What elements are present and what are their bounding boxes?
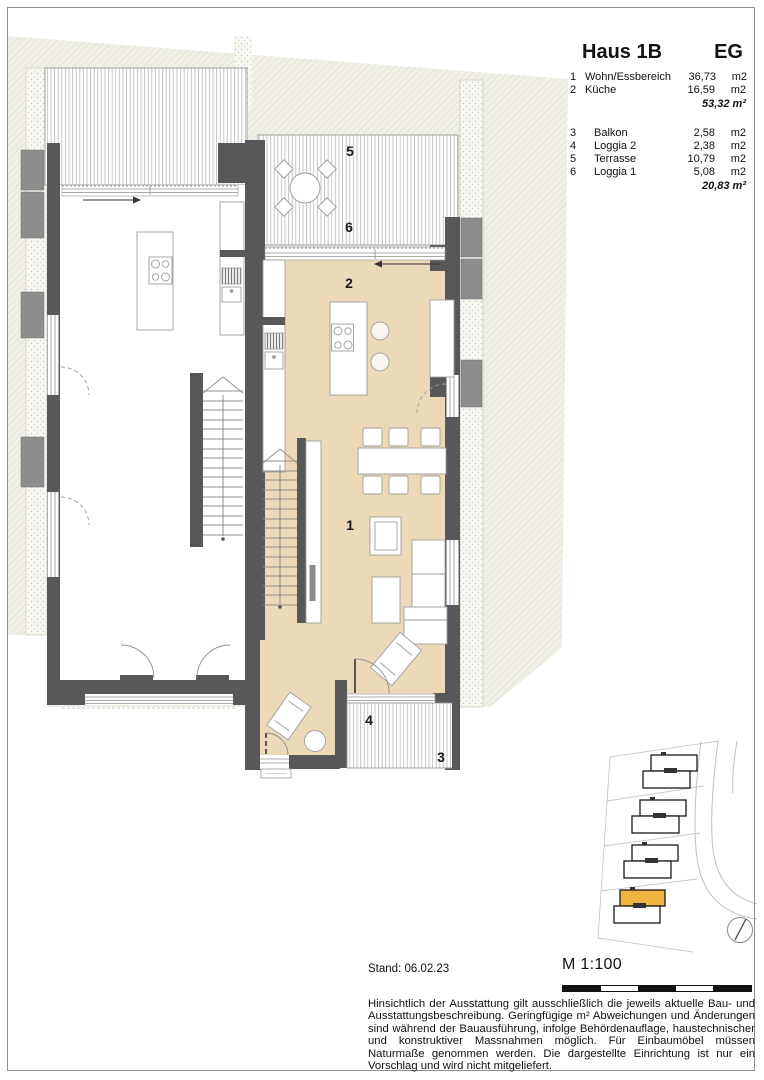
room-area: 10,79 [670,153,715,166]
house-title: Haus 1B [582,40,662,64]
scale-bar-segment [638,986,676,991]
bar-stool [371,322,389,340]
legend-row-terrasse: 5 Terrasse 10,79 m2 [560,153,746,166]
scale-bar-segment [676,986,714,991]
scale-bar-segment [563,986,601,991]
room-number: 3 [570,127,585,140]
room-label-loggia1: 6 [345,219,353,235]
room-label-terrasse: 5 [346,143,354,159]
scale-label: M 1:100 [562,956,622,974]
room-unit: m2 [715,84,746,97]
room-area: 5,08 [670,166,715,179]
room-name: Wohn/Essbereich [585,71,671,84]
window-band-top-haus1b [265,247,445,260]
room-name: Loggia 1 [585,166,670,179]
terrace-left-unit [45,68,247,185]
legend-row-balkon: 3 Balkon 2,58 m2 [560,127,746,140]
room-number: 5 [570,153,585,166]
room-area: 2,58 [670,127,715,140]
room-number: 2 [570,84,585,97]
room-number: 1 [570,71,585,84]
road [695,741,757,919]
ottoman [372,577,400,623]
room-unit: m2 [715,153,746,166]
north-compass-icon [728,918,753,943]
interior-total: 53,32 m² [560,98,746,111]
exterior-total: 20,83 m² [560,180,746,193]
side-table [305,731,326,752]
room-name: Terrasse [585,153,670,166]
room-area: 2,38 [670,140,715,153]
terrace-haus1b [258,135,458,245]
legend-title-row: Haus 1B EG [560,40,746,64]
round-table [290,173,320,203]
dining-table [358,448,446,474]
scale-bar-segment [713,986,751,991]
plan-date: Stand: 06.02.23 [368,963,449,975]
room-number: 4 [570,140,585,153]
door-leaf [196,675,229,681]
room-label-loggia2: 4 [365,712,373,728]
floor-title: EG [714,40,743,64]
room-name: Balkon [585,127,670,140]
left-unit [47,143,258,708]
sofa-chaise [404,607,447,644]
room-name: Loggia 2 [585,140,670,153]
legend-row-loggia2: 4 Loggia 2 2,38 m2 [560,140,746,153]
oven [265,333,283,349]
entry-stoop [261,769,291,778]
tall-cabinet [430,300,454,377]
room-unit: m2 [715,140,746,153]
oven [222,268,241,284]
legend: Haus 1B EG 1 Wohn/Essbereich 36,73 m2 2 … [560,40,746,193]
room-name: Küche [585,84,670,97]
legend-row-kueche: 2 Küche 16,59 m2 [560,84,746,97]
room-unit: m2 [715,166,746,179]
haus-1b-unit [250,217,460,778]
room-unit: m2 [716,71,747,84]
room-area: 16,59 [670,84,715,97]
dining-set [358,428,446,494]
room-label-wohnen: 1 [346,517,354,533]
room-unit: m2 [715,127,746,140]
window-band-top-left-unit [62,185,238,196]
sink [265,352,283,369]
tv [310,565,316,601]
room-number: 6 [570,166,585,179]
scale-bar [562,985,752,992]
room-area: 36,73 [671,71,716,84]
room-label-kueche: 2 [345,275,353,291]
bar-stool [371,353,389,371]
scale-bar-segment [601,986,639,991]
floorplan-page: 5 6 2 1 4 3 Haus 1B EG 1 Wohn/Essbereich… [0,0,764,1080]
legend-row-loggia1: 6 Loggia 1 5,08 m2 [560,166,746,179]
door-leaf [120,675,153,681]
site-plan [598,741,757,952]
disclaimer-text: Hinsichtlich der Ausstattung gilt aussch… [368,998,755,1072]
legend-row-wohnen: 1 Wohn/Essbereich 36,73 m2 [560,71,746,84]
room-label-balkon: 3 [437,749,445,765]
